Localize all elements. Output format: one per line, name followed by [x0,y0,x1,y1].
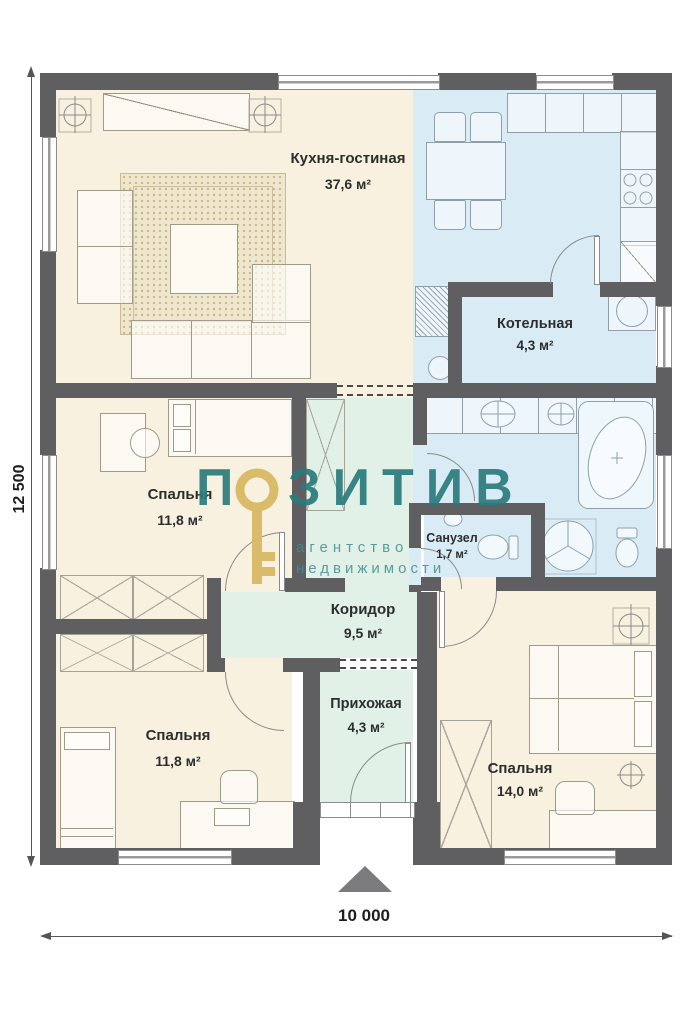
watermark-tagline-line2: недвижимости [296,561,445,576]
blanket-line [195,400,196,454]
door-leaf [594,236,600,285]
wall [413,383,656,398]
room-label-bedroom2: Спальня [108,728,248,745]
wall [285,578,345,592]
desk-icon [180,801,295,850]
room-area-kitchen-living: 37,6 м² [248,177,448,192]
dashed-opening [340,667,417,669]
floor-plan: Кухня-гостиная 37,6 м² Котельная 4,3 м² … [0,0,688,1024]
wall [303,670,320,803]
watermark-brand-rest: ЗИТИВ [288,462,525,514]
sofa-icon [131,320,311,379]
room-label-corridor: Коридор [303,602,423,619]
wall [448,282,553,297]
chair-icon [130,428,160,458]
sink-icon [478,398,518,430]
window [118,850,232,865]
wardrobe-icon [132,575,204,621]
room-area-bedroom2: 11,8 м² [108,754,248,769]
blanket-line [61,836,113,837]
pillow [173,429,191,452]
wall [656,547,672,865]
room-area-entry-hall: 4,3 м² [306,721,426,736]
wall [40,73,278,90]
window [42,455,57,570]
monitor [214,808,250,826]
toilet-icon [612,527,642,569]
chair-icon [470,200,502,230]
dashed-opening [337,394,413,396]
wall [409,585,421,592]
key-icon [232,466,282,588]
arrow-left-icon [40,932,51,940]
chair-icon [470,112,502,142]
sink-icon [545,400,577,428]
dimension-line-vertical [31,75,32,863]
wardrobe-icon [60,575,134,621]
room-area-boiler: 4,3 м² [465,339,605,354]
chair-icon [434,200,466,230]
wall [531,503,545,577]
room-label-wc: Санузел [413,532,491,546]
room-label-kitchen-living: Кухня-гостиная [248,151,448,168]
water-heater-drum [616,295,648,327]
wall [293,802,320,865]
wall [656,366,672,455]
bed-icon [60,727,116,850]
door-leaf [439,591,445,648]
fridge-icon [620,241,658,285]
dashed-opening [337,385,413,387]
entrance-door-sill [320,802,415,818]
sofa-icon [77,190,133,304]
wall [438,73,536,90]
wall [56,383,337,398]
wall [207,658,225,672]
pillow [173,404,191,427]
room-label-bedroom3: Спальня [450,761,590,778]
bed-icon [168,399,292,457]
room-label-entry-hall: Прихожая [306,697,426,713]
sofa-cushion-line [78,246,132,247]
wall [496,577,656,591]
mattress-line [530,698,634,699]
arrow-down-icon [27,856,35,867]
chair-icon [434,112,466,142]
pillow [64,732,110,750]
window [657,306,672,368]
vent-icon [58,95,92,133]
entrance-arrow-icon [338,866,392,892]
window [504,850,616,865]
desk-icon [549,810,659,849]
wall [600,282,656,297]
sofa-cushion-line [251,321,252,378]
dashed-opening [340,659,417,661]
arrow-up-icon [27,66,35,77]
pillow [634,701,652,747]
kitchen-counter [507,93,658,133]
blanket-line [558,646,559,751]
water-heater-icon [608,291,656,331]
wall [656,73,672,306]
boiler-icon [415,286,450,337]
wall [56,619,210,634]
arrow-right-icon [662,932,673,940]
door-opening [553,282,600,297]
window [657,455,672,549]
tv-console-icon [103,93,250,131]
chair-icon [220,770,258,804]
sofa-cushion-line [191,321,192,378]
bathtub-icon [577,400,655,510]
window [42,137,57,252]
pillow [634,651,652,697]
room-label-boiler: Котельная [465,317,605,333]
dimension-label-vertical: 12 500 [11,459,29,519]
double-bed-icon [529,645,658,754]
door-leaf [405,743,411,803]
watermark-tagline-line1: агентство [296,540,408,555]
door-opening [225,658,283,672]
dimension-line-horizontal [42,936,672,937]
wall [413,396,427,445]
wall [40,568,56,865]
dimension-label-horizontal: 10 000 [338,906,390,926]
wardrobe-icon [60,634,134,672]
window [536,75,614,90]
armchair-icon [252,264,311,323]
vent-icon [612,603,650,645]
vent-icon [615,761,647,789]
shower-icon [539,518,597,575]
blanket-line [61,828,113,829]
wall [40,73,56,137]
wall [448,282,462,383]
room-area-bedroom3: 14,0 м² [450,784,590,799]
wall [40,250,56,455]
stove-icon [621,169,655,209]
vent-icon [248,95,282,133]
coffee-table-icon [170,224,238,294]
room-area-corridor: 9,5 м² [303,626,423,641]
window [278,75,440,90]
wardrobe-icon [132,634,204,672]
